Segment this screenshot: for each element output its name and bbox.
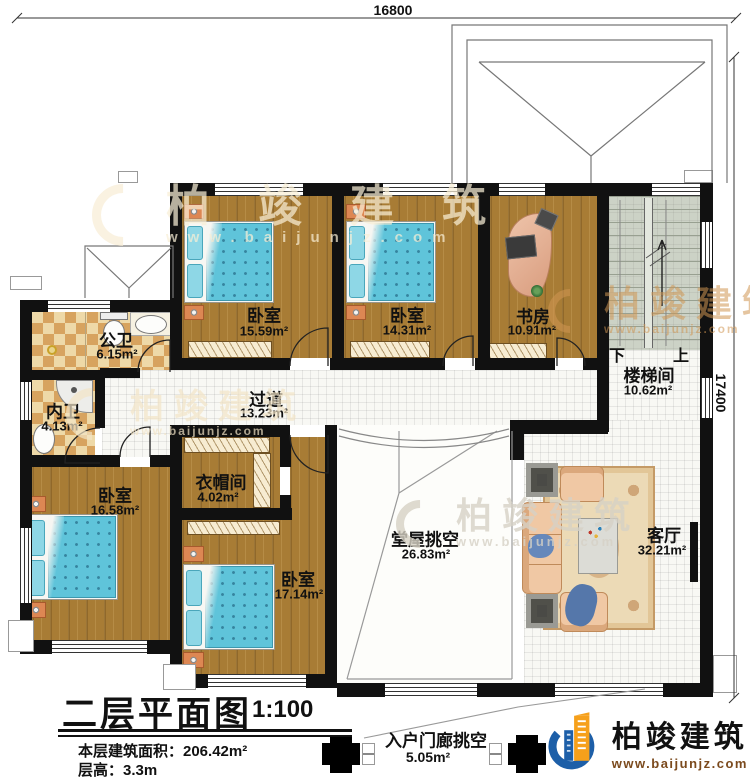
room-area-living: 32.21m² [638, 543, 686, 558]
room-area-stairwell: 10.62m² [624, 383, 672, 398]
room-area-public-bath: 6.15m² [96, 347, 137, 362]
roof-lines [85, 25, 727, 298]
brand-text: 柏竣建筑 www.baijunjz.com [612, 712, 748, 771]
porch-column [322, 735, 360, 773]
room-area-study: 10.91m² [508, 323, 556, 338]
porch-bracket [362, 743, 375, 765]
dimension-right: 17400 [713, 374, 729, 413]
room-area-porch: 5.05m² [406, 749, 450, 765]
stairs-up-label: 上 [673, 342, 689, 366]
brand-logo: 柏竣建筑 www.baijunjz.com [548, 702, 748, 780]
brand-name: 柏竣建筑 [612, 712, 748, 756]
door-arcs [65, 328, 585, 473]
floor-area-line: 本层建筑面积：206.42m² [78, 740, 247, 761]
room-area-corridor: 13.23m² [240, 406, 288, 421]
room-area-bedroom4: 17.14m² [275, 587, 323, 602]
room-area-hall-void: 26.83m² [402, 547, 450, 562]
drawing-scale: 1:100 [252, 696, 313, 724]
stairs-detail [620, 200, 670, 346]
column-part [516, 735, 538, 773]
room-area-bedroom3: 16.58m² [91, 503, 139, 518]
room-area-cloakroom: 4.02m² [197, 490, 238, 505]
room-area-bedroom2: 14.31m² [383, 323, 431, 338]
dimension-top: 16800 [374, 2, 413, 18]
room-area-bedroom1: 15.59m² [240, 324, 288, 339]
brand-logo-icon [548, 707, 604, 775]
room-area-private-bath: 4.13m² [41, 419, 82, 434]
floor-height-line: 层高：3.3m [78, 759, 157, 780]
brand-website: www.baijunjz.com [612, 756, 748, 771]
porch-column [508, 735, 546, 773]
column-part [330, 735, 352, 773]
porch-bracket [489, 743, 502, 765]
title-underline [58, 729, 352, 732]
title-underline-2 [58, 735, 352, 737]
floor-plan-page: 卧室 15.59m² 卧室 14.31m² 书房 10.91m² 下 上 楼梯间… [0, 0, 750, 781]
room-label-porch: 入户门廊挑空 [385, 727, 487, 752]
